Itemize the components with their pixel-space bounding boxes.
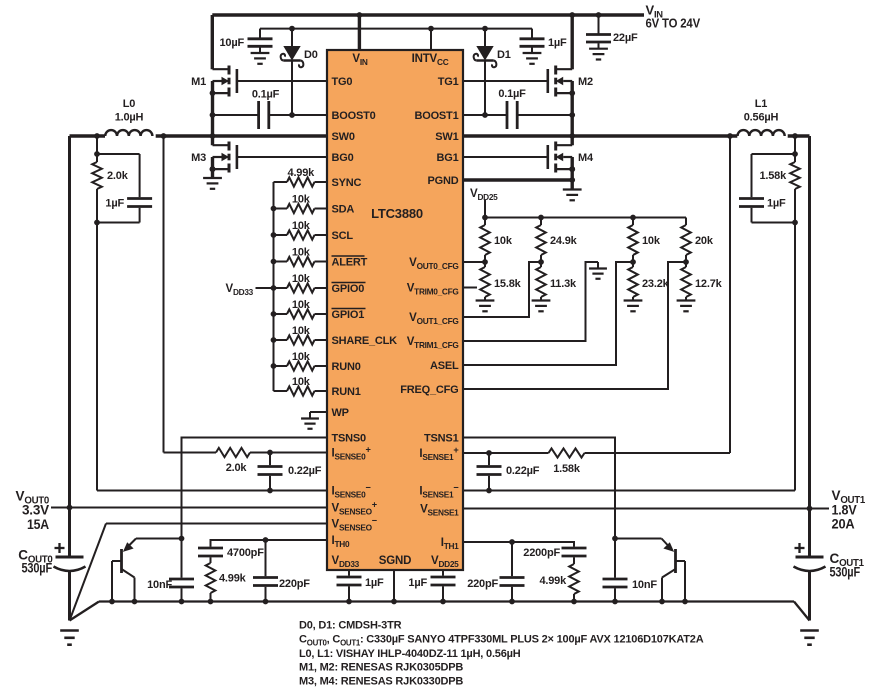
svg-text:L1: L1 <box>755 98 768 110</box>
svg-text:1.58k: 1.58k <box>759 170 787 182</box>
svg-text:M1: M1 <box>191 76 206 88</box>
svg-text:20A: 20A <box>832 517 855 532</box>
svg-text:10k: 10k <box>292 299 311 311</box>
svg-text:ASEL: ASEL <box>430 360 459 372</box>
svg-text:BOOST1: BOOST1 <box>414 110 458 122</box>
svg-text:10k: 10k <box>292 351 311 363</box>
svg-text:1µF: 1µF <box>365 577 384 589</box>
svg-text:SDA: SDA <box>332 204 355 216</box>
svg-text:LTC3880: LTC3880 <box>371 206 423 221</box>
svg-text:530µF: 530µF <box>830 565 861 580</box>
svg-text:12.7k: 12.7k <box>695 278 723 290</box>
svg-text:SHARE_CLK: SHARE_CLK <box>332 335 398 347</box>
svg-text:10k: 10k <box>292 376 311 388</box>
svg-text:10k: 10k <box>642 235 661 247</box>
svg-text:1µF: 1µF <box>767 198 786 210</box>
svg-text:SW0: SW0 <box>332 131 355 143</box>
svg-text:1.8V: 1.8V <box>832 502 857 517</box>
svg-text:M3: M3 <box>191 152 206 164</box>
svg-text:TSNS1: TSNS1 <box>424 433 459 445</box>
svg-text:4.99k: 4.99k <box>219 573 247 585</box>
svg-text:GPIO1: GPIO1 <box>332 309 365 321</box>
svg-text:D0: D0 <box>304 49 318 61</box>
svg-text:TG0: TG0 <box>332 76 353 88</box>
svg-text:M2: M2 <box>578 76 593 88</box>
svg-text:10µF: 10µF <box>220 37 245 49</box>
svg-text:1µF: 1µF <box>408 577 427 589</box>
svg-text:20k: 20k <box>695 235 714 247</box>
svg-text:L0, L1: VISHAY IHLP-4040DZ-11: L0, L1: VISHAY IHLP-4040DZ-11 1µH, 0.56µ… <box>299 648 521 660</box>
svg-text:4.99k: 4.99k <box>539 575 567 587</box>
svg-text:SGND: SGND <box>379 555 411 567</box>
svg-text:15.8k: 15.8k <box>494 278 522 290</box>
svg-text:BG1: BG1 <box>436 152 458 164</box>
svg-text:M4: M4 <box>578 152 594 164</box>
svg-text:10nF: 10nF <box>147 579 172 591</box>
svg-text:RUN0: RUN0 <box>332 361 361 373</box>
svg-text:11.3k: 11.3k <box>550 278 577 290</box>
svg-text:10k: 10k <box>292 220 311 232</box>
svg-text:0.56µH: 0.56µH <box>744 112 779 124</box>
svg-text:0.22µF: 0.22µF <box>506 465 540 477</box>
svg-text:M1, M2: RENESAS RJK0305DPB: M1, M2: RENESAS RJK0305DPB <box>299 662 463 674</box>
svg-text:220pF: 220pF <box>467 578 498 590</box>
svg-text:1µF: 1µF <box>548 37 567 49</box>
svg-text:TSNS0: TSNS0 <box>332 433 367 445</box>
svg-text:TG1: TG1 <box>438 76 459 88</box>
svg-text:0.1µF: 0.1µF <box>252 89 280 101</box>
svg-text:BOOST0: BOOST0 <box>332 110 376 122</box>
svg-text:0.22µF: 0.22µF <box>288 465 322 477</box>
svg-text:530µF: 530µF <box>22 561 53 576</box>
svg-text:COUT0, COUT1: C330µF SANYO 4TP: COUT0, COUT1: C330µF SANYO 4TPF330ML PLU… <box>299 634 704 648</box>
svg-text:10k: 10k <box>292 194 311 206</box>
svg-text:4700pF: 4700pF <box>227 547 264 559</box>
svg-text:0.1µF: 0.1µF <box>498 88 526 100</box>
svg-text:RUN1: RUN1 <box>332 386 361 398</box>
svg-text:4.99k: 4.99k <box>288 167 316 179</box>
svg-text:1µF: 1µF <box>105 198 124 210</box>
svg-text:1.58k: 1.58k <box>553 463 581 475</box>
svg-text:10k: 10k <box>292 247 311 259</box>
svg-text:GPIO0: GPIO0 <box>332 283 365 295</box>
svg-text:15A: 15A <box>27 517 49 532</box>
svg-text:FREQ_CFG: FREQ_CFG <box>400 384 458 396</box>
svg-text:D0, D1: CMDSH-3TR: D0, D1: CMDSH-3TR <box>299 620 402 632</box>
svg-text:220pF: 220pF <box>279 578 310 590</box>
svg-text:2.0k: 2.0k <box>226 462 248 474</box>
svg-text:2200pF: 2200pF <box>523 547 560 559</box>
svg-text:6V TO 24V: 6V TO 24V <box>646 16 701 31</box>
svg-text:D1: D1 <box>497 49 511 61</box>
svg-text:22µF: 22µF <box>613 32 638 44</box>
svg-text:2.0k: 2.0k <box>107 170 129 182</box>
svg-text:10k: 10k <box>494 235 513 247</box>
svg-text:SCL: SCL <box>332 230 354 242</box>
svg-text:WP: WP <box>332 407 349 419</box>
svg-text:L0: L0 <box>123 98 136 110</box>
svg-text:ALERT: ALERT <box>332 257 368 269</box>
svg-text:10nF: 10nF <box>632 579 657 591</box>
svg-text:SYNC: SYNC <box>332 177 362 189</box>
svg-text:1.0µH: 1.0µH <box>115 112 144 124</box>
svg-text:10k: 10k <box>292 273 311 285</box>
svg-text:23.2k: 23.2k <box>642 278 670 290</box>
svg-text:SW1: SW1 <box>435 131 458 143</box>
svg-text:10k: 10k <box>292 325 311 337</box>
svg-text:BG0: BG0 <box>332 152 354 164</box>
svg-text:M3, M4: RENESAS RJK0330DPB: M3, M4: RENESAS RJK0330DPB <box>299 676 463 688</box>
svg-text:PGND: PGND <box>428 175 459 187</box>
svg-text:3.3V: 3.3V <box>22 503 49 518</box>
svg-text:24.9k: 24.9k <box>550 235 578 247</box>
